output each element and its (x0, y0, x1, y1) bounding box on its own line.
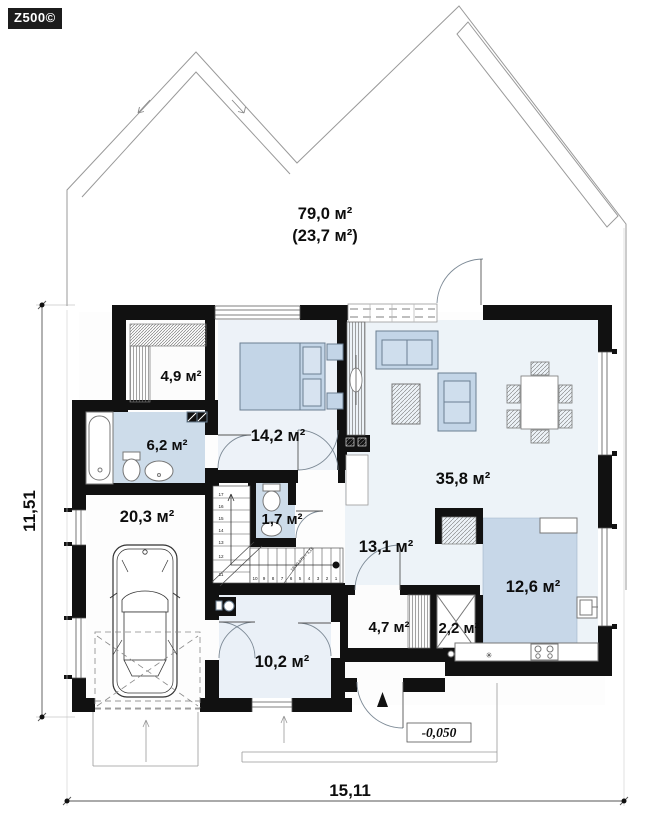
label-hallway: 10,2 м² (255, 653, 310, 671)
floor-plan-drawing: 17 16 15 14 13 12 11 10 9 8 7 6 5 4 3 2 … (0, 0, 655, 835)
stove (531, 644, 558, 660)
driveway (93, 712, 198, 766)
window-garage-left-1 (72, 510, 86, 545)
stair-step-3: 3 (317, 576, 320, 581)
stair-step-9: 9 (263, 576, 266, 581)
stair-step-10: 10 (252, 576, 258, 581)
kitchen-star-symbol: ✳ (486, 651, 493, 660)
bathtub (86, 412, 113, 484)
floor-plan-page: Z500© (0, 0, 655, 835)
label-living: 35,8 м² (436, 470, 491, 488)
window-terrace-door (348, 304, 437, 322)
stair-step-6: 6 (290, 576, 293, 581)
window-living-right (598, 352, 612, 455)
stair-step-8: 8 (272, 576, 275, 581)
label-kitchen: 12,6 м² (506, 578, 561, 596)
coffee-table (392, 384, 420, 424)
stair-step-13: 13 (218, 540, 224, 545)
sofa (376, 331, 438, 369)
window-bedroom-top (215, 305, 300, 320)
toilet-wc (263, 484, 280, 511)
door-terrace (437, 259, 483, 305)
stair-step-4: 4 (308, 576, 311, 581)
pantry-shelves (408, 595, 430, 648)
label-attic-area: 79,0 м² (298, 205, 353, 223)
sink-bathroom (145, 461, 173, 481)
stair-step-7: 7 (281, 576, 284, 581)
stair-step-2: 2 (326, 576, 329, 581)
label-garage: 20,3 м² (120, 508, 175, 526)
stair-step-16: 16 (218, 504, 224, 509)
label-hall: 13,1 м² (359, 538, 414, 556)
stair-step-17: 17 (218, 492, 224, 497)
stair-step-1: 1 (335, 576, 338, 581)
stair-step-15: 15 (218, 516, 224, 521)
stair-step-5: 5 (299, 576, 302, 581)
window-garage-left-2 (72, 618, 86, 678)
window-hallway-bottom (252, 698, 292, 712)
chimney (346, 322, 368, 505)
toilet-bathroom (123, 452, 140, 481)
label-tech: 2,2 м² (438, 620, 479, 637)
car (110, 545, 180, 697)
stair-step-12: 12 (218, 554, 224, 559)
kitchen-sink (577, 597, 598, 618)
label-attic-area-2: (23,7 м²) (292, 227, 357, 245)
washing-machine-icon (187, 412, 207, 422)
armchair (438, 373, 476, 431)
boiler-detail (216, 601, 234, 611)
stair-step-14: 14 (218, 528, 224, 533)
label-bedroom: 14,2 м² (251, 427, 306, 445)
label-wardrobe: 4,9 м² (160, 368, 201, 385)
stair-step-11: 11 (219, 572, 224, 577)
label-bathroom: 6,2 м² (146, 437, 187, 454)
hall-wardrobe (442, 517, 476, 544)
dim-height-label: 11,51 (20, 490, 39, 532)
level-mark-label: -0,050 (422, 725, 457, 740)
label-pantry: 4,7 м² (368, 619, 409, 636)
label-wc: 1,7 м² (261, 511, 302, 528)
dim-width-label: 15,11 (329, 781, 371, 800)
window-kitchen-right (598, 528, 612, 626)
